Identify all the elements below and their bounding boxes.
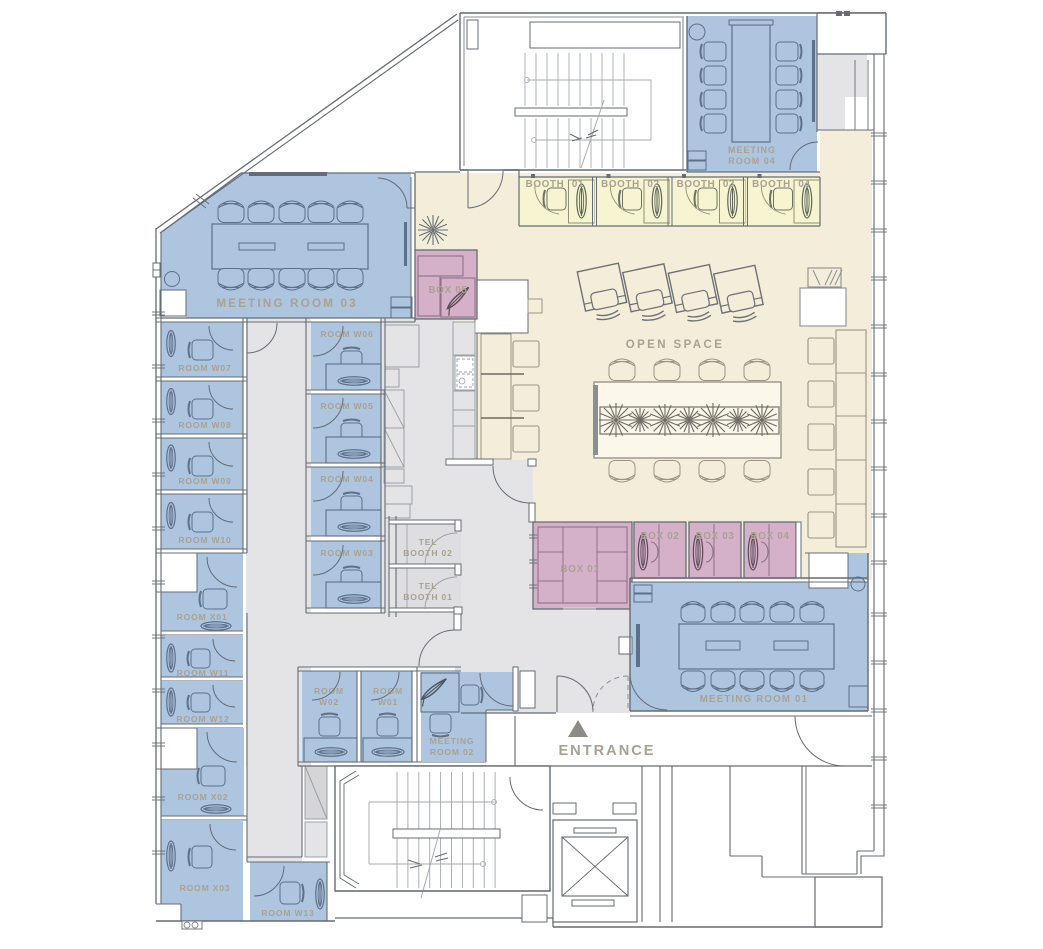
svg-text:BOX 02: BOX 02 (640, 531, 679, 542)
svg-text:ROOM X02: ROOM X02 (178, 792, 229, 802)
svg-text:ROOM X03: ROOM X03 (180, 883, 231, 893)
svg-text:ROOM W08: ROOM W08 (178, 420, 231, 430)
svg-text:ROOM W13: ROOM W13 (261, 908, 314, 918)
svg-text:04: 04 (798, 179, 810, 190)
svg-text:ROOM W04: ROOM W04 (320, 474, 373, 484)
svg-text:BOX 05: BOX 05 (428, 285, 467, 296)
svg-text:MEETING ROOM 01: MEETING ROOM 01 (700, 694, 808, 705)
svg-text:BOX 04: BOX 04 (750, 531, 789, 542)
svg-text:BOX 03: BOX 03 (695, 531, 734, 542)
svg-text:MEETING ROOM 03: MEETING ROOM 03 (216, 296, 358, 310)
svg-text:02: 02 (647, 179, 659, 190)
svg-text:ROOM 04: ROOM 04 (728, 156, 776, 166)
svg-text:ROOM W09: ROOM W09 (178, 476, 231, 486)
svg-text:OPEN SPACE: OPEN SPACE (626, 339, 725, 351)
svg-text:ROOM W12: ROOM W12 (176, 714, 229, 724)
svg-text:BOOTH: BOOTH (601, 179, 640, 190)
svg-text:ROOM W03: ROOM W03 (320, 548, 373, 558)
svg-text:ROOM W07: ROOM W07 (178, 363, 231, 373)
svg-text:MEETING: MEETING (728, 145, 776, 155)
svg-text:ROOM W10: ROOM W10 (178, 535, 231, 545)
svg-text:MEETING: MEETING (430, 736, 475, 746)
svg-text:BOOTH: BOOTH (677, 179, 716, 190)
svg-text:ENTRANCE: ENTRANCE (558, 743, 655, 759)
svg-text:BOOTH: BOOTH (752, 179, 791, 190)
svg-text:BOOTH 02: BOOTH 02 (403, 548, 452, 558)
svg-text:BOX 01: BOX 01 (560, 564, 599, 575)
svg-text:BOOTH: BOOTH (526, 179, 565, 190)
svg-text:TEL: TEL (419, 537, 438, 547)
svg-text:01: 01 (572, 179, 584, 190)
svg-text:ROOM W05: ROOM W05 (320, 401, 373, 411)
svg-text:BOOTH 01: BOOTH 01 (403, 592, 452, 602)
svg-text:ROOM X01: ROOM X01 (177, 612, 228, 622)
svg-text:03: 03 (723, 179, 735, 190)
svg-text:ROOM 02: ROOM 02 (430, 747, 474, 757)
svg-text:ROOM W06: ROOM W06 (320, 329, 373, 339)
svg-text:TEL: TEL (419, 581, 438, 591)
